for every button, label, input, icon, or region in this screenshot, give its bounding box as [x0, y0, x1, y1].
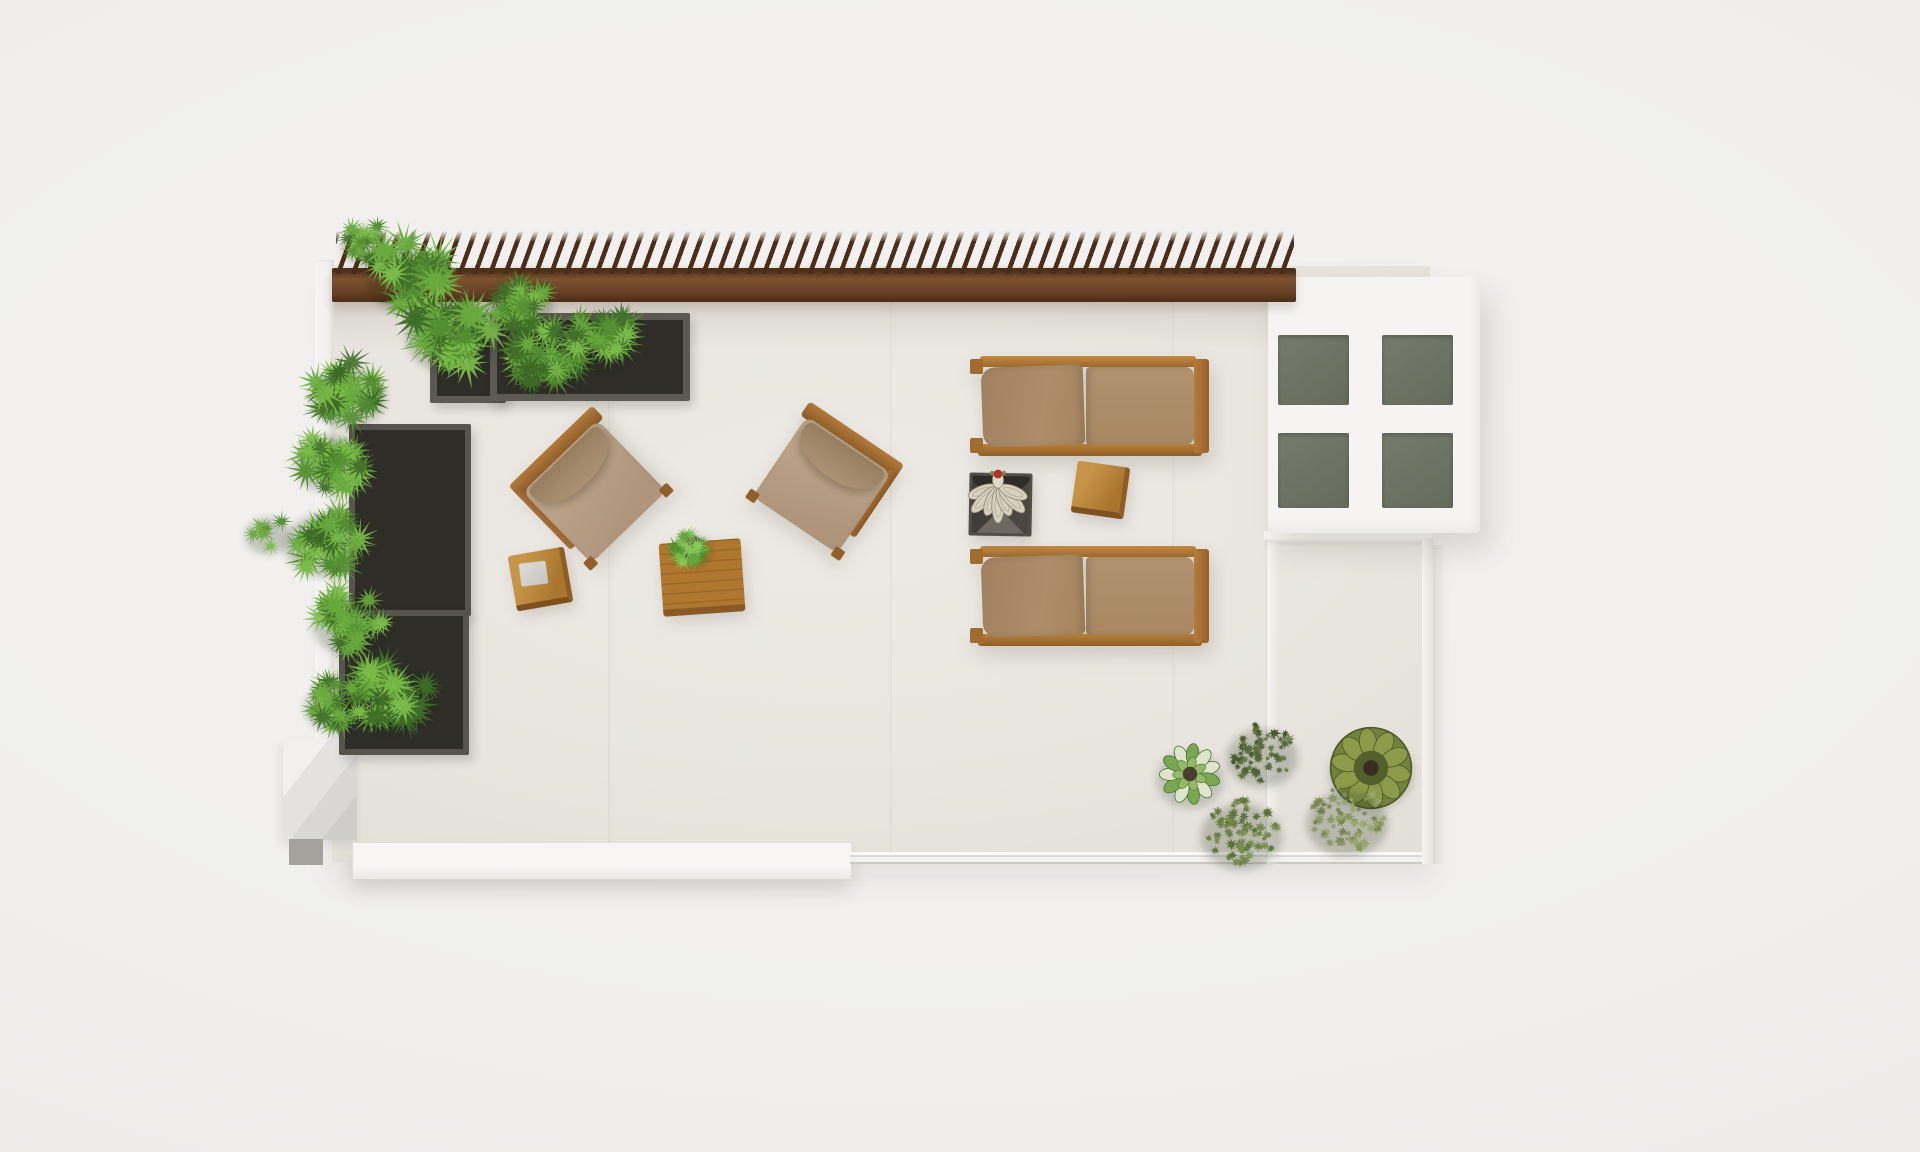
- planter-box-left-lower: [339, 610, 469, 755]
- lounger-body-cushion: [1086, 557, 1194, 635]
- lounger-head-cushion: [981, 554, 1086, 638]
- skylight-window: [1268, 277, 1480, 533]
- lounger-foot: [970, 438, 983, 453]
- bottom-left-step-lower: [289, 839, 323, 865]
- pergola-slats: [336, 231, 1294, 274]
- lounger-foot: [970, 359, 983, 374]
- right-parapet-edge: [1422, 538, 1433, 864]
- sun-lounger-bottom: [970, 544, 1210, 648]
- lounger-head-cushion: [981, 364, 1086, 448]
- skylight-pane: [1382, 335, 1453, 405]
- coffee-table-plant-pot: [678, 535, 704, 561]
- terrace-top-view-render: [0, 0, 1920, 1152]
- lounger-foot: [970, 549, 983, 564]
- lounger-wood-cap: [1194, 549, 1209, 643]
- floor-seam-vertical: [1266, 542, 1279, 864]
- planter-box-left-upper: [349, 424, 471, 616]
- lounger-wood-cap: [1194, 359, 1209, 453]
- bottom-parapet-ledge: [352, 843, 851, 879]
- sun-lounger-top: [970, 354, 1210, 458]
- succulent-tray: [968, 472, 1032, 536]
- lounger-foot: [970, 628, 983, 643]
- planter-box-top-wide: [490, 313, 690, 401]
- skylight-curb-horizontal: [1264, 531, 1432, 547]
- floor-tile-seam: [890, 266, 892, 862]
- cube-stool: [508, 546, 574, 611]
- right-parapet-edge-outer: [1433, 545, 1446, 864]
- lounger-body-cushion: [1086, 367, 1194, 445]
- left-parapet-wall: [315, 260, 334, 748]
- lounger-wood-rail: [980, 356, 1196, 367]
- bottom-glass-rail: [850, 852, 1430, 867]
- skylight-pane: [1278, 335, 1349, 405]
- lounger-wood-rail: [980, 546, 1196, 557]
- side-table-cube: [1071, 461, 1131, 520]
- skylight-pane: [1382, 433, 1453, 508]
- stool-towel: [519, 561, 549, 587]
- skylight-pane: [1278, 433, 1349, 508]
